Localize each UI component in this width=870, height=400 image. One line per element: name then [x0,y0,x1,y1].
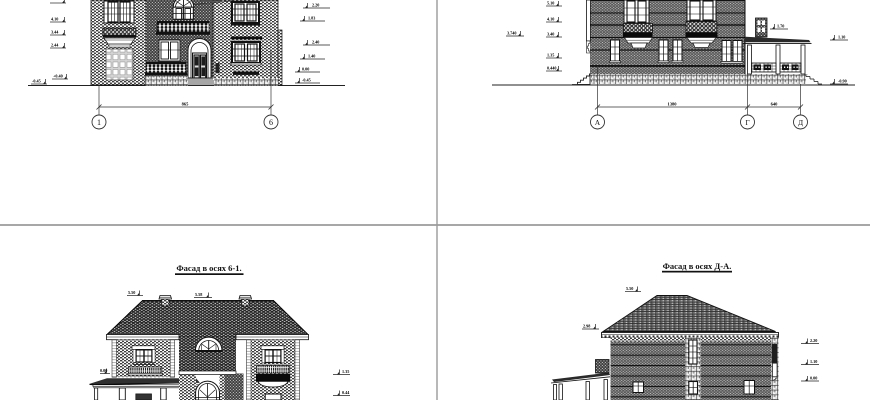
svg-text:0.00: 0.00 [810,376,817,381]
svg-text:Фасад в осях Д-А.: Фасад в осях Д-А. [663,261,732,271]
svg-text:2.20: 2.20 [810,338,817,343]
svg-text:2.98: 2.98 [583,324,590,329]
svg-text:1.10: 1.10 [838,35,845,40]
svg-text:Г: Г [745,118,750,127]
svg-text:Фасад в осях 6-1.: Фасад в осях 6-1. [176,263,241,273]
svg-text:+0.40: +0.40 [53,74,63,79]
svg-text:2.44: 2.44 [51,43,59,48]
svg-text:6: 6 [269,118,273,127]
svg-text:1.35: 1.35 [342,369,349,374]
svg-text:0.44: 0.44 [342,390,350,395]
svg-text:5.50: 5.50 [128,290,135,295]
svg-text:1: 1 [97,118,101,127]
svg-text:А: А [595,118,601,127]
svg-text:-0.90: -0.90 [838,79,847,84]
svg-text:3.40: 3.40 [547,32,554,37]
svg-text:0.00: 0.00 [100,368,107,373]
svg-text:2.20: 2.20 [312,3,319,8]
svg-text:1.83: 1.83 [308,16,315,21]
svg-text:2.40: 2.40 [312,40,319,45]
svg-text:3.740: 3.740 [507,31,516,36]
svg-text:1.35: 1.35 [547,53,554,58]
svg-text:1.10: 1.10 [810,359,817,364]
svg-text:865: 865 [182,102,190,107]
svg-text:4.10: 4.10 [51,17,58,22]
svg-text:3.44: 3.44 [51,30,59,35]
svg-text:1.70: 1.70 [777,24,784,29]
svg-text:1380: 1380 [668,102,678,107]
svg-text:5.10: 5.10 [547,1,554,6]
svg-text:-0.45: -0.45 [302,78,311,83]
svg-text:5.50: 5.50 [626,286,633,291]
svg-text:640: 640 [771,102,779,107]
svg-text:-0.45: -0.45 [32,79,41,84]
svg-text:0.440: 0.440 [547,66,556,71]
svg-text:1.40: 1.40 [308,54,315,59]
svg-text:0.00: 0.00 [302,67,309,72]
svg-text:5.58: 5.58 [195,292,202,297]
svg-text:Д: Д [798,118,803,127]
svg-text:4.10: 4.10 [547,17,554,22]
